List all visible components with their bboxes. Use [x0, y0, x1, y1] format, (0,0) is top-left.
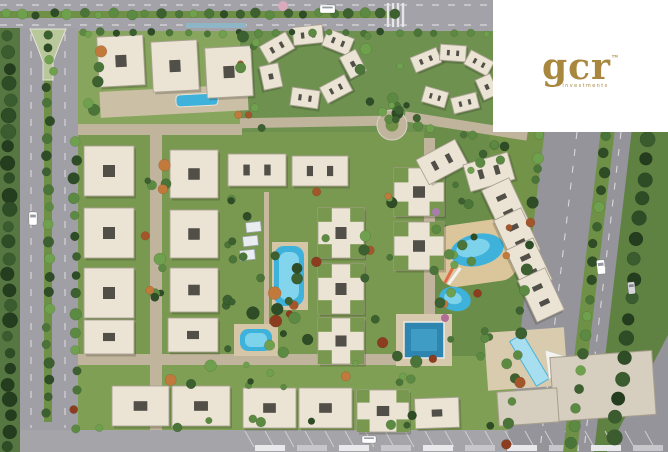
trees-south-band — [400, 373, 407, 380]
trees-central-garden — [289, 312, 301, 324]
trees — [458, 198, 465, 205]
tree-row-left-edge — [2, 140, 14, 152]
trees-south-band — [243, 362, 249, 368]
trees — [251, 104, 259, 112]
trees-central-garden — [256, 274, 264, 282]
roof-core — [103, 287, 115, 299]
tree-row-right-edge — [639, 152, 652, 165]
tree-row-north-hedge — [376, 28, 383, 35]
trees — [258, 124, 266, 132]
trees — [387, 93, 398, 104]
tree-row-north-hedge — [254, 29, 262, 37]
roof-core — [301, 32, 305, 38]
parking-row — [633, 445, 663, 451]
tree-row-right-edge — [607, 430, 623, 446]
trees-south-hedge — [96, 424, 103, 431]
tree-row-avenue-median — [596, 185, 606, 195]
trees-waterpark — [435, 298, 445, 308]
tree-row-top-median — [51, 8, 60, 17]
tree-row-top-median — [390, 9, 400, 19]
trees — [158, 184, 168, 194]
tree-row-right-edge — [632, 211, 647, 226]
tree-row-right-edge — [640, 132, 655, 147]
trees-central-garden — [271, 303, 283, 315]
tree-row-top-median — [175, 10, 183, 18]
tree-row-left-median — [44, 393, 52, 401]
tree-row-north-hedge — [483, 31, 489, 37]
tree-row-west-verge — [71, 288, 81, 298]
trees-south-band — [429, 355, 437, 363]
trees-central-garden — [311, 257, 321, 267]
trees-waterpark — [446, 288, 455, 297]
developer-logo: gcr™ — [542, 43, 619, 82]
tree-row-top-median — [204, 9, 214, 19]
trees-south-band — [406, 375, 415, 384]
tree-row-north-hedge — [326, 29, 332, 35]
car — [320, 5, 335, 13]
tree-row-right-edge — [618, 351, 632, 365]
trees-waterpark — [503, 252, 510, 259]
parking-row — [381, 445, 411, 451]
building-notch — [350, 208, 364, 222]
tree-row-avenue-median — [577, 348, 588, 359]
tree-row-left-edge — [2, 188, 17, 203]
trees — [477, 352, 485, 360]
tree-row-right-edge — [635, 191, 649, 205]
trees-waterpark — [450, 261, 458, 269]
tree-row-west-verge — [70, 405, 78, 413]
roof-core — [413, 240, 425, 252]
tree-row-left-median — [45, 203, 53, 211]
tree-row-avenue-verge — [519, 285, 530, 296]
tree-row-island — [49, 67, 57, 75]
roof-core — [115, 55, 127, 68]
building-slab — [439, 44, 466, 62]
parking-row — [255, 445, 285, 451]
tree-row-top-median — [80, 8, 89, 17]
trees — [426, 124, 434, 132]
tree-row-west-verge — [70, 328, 81, 339]
tree-row-left-median — [42, 98, 51, 107]
trees — [371, 315, 380, 324]
trees — [413, 114, 421, 122]
tree-row-left-edge — [2, 392, 17, 407]
trees-central-garden — [291, 273, 302, 284]
tree-row-north-hedge — [451, 30, 458, 37]
tree-row-left-edge — [3, 284, 17, 298]
trees — [146, 286, 154, 294]
tree-row-west-verge — [68, 172, 80, 184]
tree-row-left-edge — [2, 313, 17, 328]
trees — [360, 274, 369, 283]
tree-row-left-edge — [1, 124, 16, 139]
tree-row-left-edge — [5, 363, 16, 374]
tree-row-north-hedge — [148, 28, 155, 35]
trees — [235, 62, 246, 73]
tree-row-north-hedge — [219, 30, 227, 38]
roof-core — [223, 66, 235, 79]
tree-row-left-median — [44, 287, 54, 297]
tree-row-left-median — [44, 358, 55, 369]
tree-row-avenue-verge — [526, 218, 535, 227]
tree-row-north-hedge — [289, 29, 295, 35]
tree-row-top-median — [265, 10, 274, 19]
street-internal — [150, 132, 162, 430]
parking-row — [339, 445, 369, 451]
tree-row-top-median — [2, 9, 11, 18]
tree-row-avenue-verge — [501, 439, 511, 449]
tree-row-north-hedge — [414, 28, 422, 36]
roof-core — [264, 165, 270, 176]
tree-row-right-edge — [615, 372, 630, 387]
tree-row-right-edge — [627, 252, 640, 265]
trees — [452, 182, 458, 188]
tree-row-left-median — [43, 219, 53, 229]
trees — [447, 336, 454, 343]
tree-row-avenue-verge — [532, 176, 540, 184]
tree-row-left-edge — [2, 202, 17, 217]
tree-row-left-median — [45, 272, 55, 282]
trees — [229, 299, 236, 306]
tree-row-avenue-median — [582, 311, 592, 321]
building-notch — [396, 390, 409, 403]
trees — [395, 106, 404, 115]
tree-row-avenue-verge — [516, 307, 524, 315]
trees — [83, 98, 93, 108]
trees — [534, 165, 542, 173]
trees-central-garden — [285, 297, 293, 305]
tree-row-avenue-verge — [503, 418, 514, 429]
tree-row-avenue-median — [601, 131, 611, 141]
tree-row-right-edge — [622, 313, 634, 325]
car — [362, 436, 376, 443]
trees-central-garden — [264, 340, 275, 351]
building-notch — [318, 264, 332, 278]
developer-logo-panel: gcr™ investments — [493, 0, 668, 132]
building-notch — [318, 208, 332, 222]
tree-row-right-edge — [611, 392, 625, 406]
roof-core — [413, 186, 425, 198]
tree-row-top-median — [343, 8, 353, 18]
trees-south-band — [392, 351, 402, 361]
trees-south-hedge — [408, 411, 417, 420]
canal — [186, 23, 246, 28]
tree-row-west-verge — [68, 193, 79, 204]
tree-row-left-edge — [5, 409, 17, 421]
tree-row-left-median — [44, 253, 55, 264]
trees — [141, 232, 150, 241]
tree-row-avenue-median — [599, 167, 610, 178]
trees — [159, 159, 171, 171]
trees-south-band — [186, 379, 196, 389]
parking-row — [591, 445, 621, 451]
roof-core — [187, 331, 199, 339]
trees-south-hedge — [256, 417, 266, 427]
tree-row-north-hedge — [204, 31, 211, 38]
roof-core — [103, 333, 115, 341]
trees — [467, 167, 474, 174]
trees — [237, 31, 249, 43]
trees — [500, 142, 509, 151]
tree-row-left-median — [45, 375, 55, 385]
tree-row-left-edge — [2, 30, 13, 41]
tree-row-top-median — [61, 9, 72, 20]
roof-core — [432, 409, 443, 417]
trees — [85, 31, 91, 37]
roof-core — [243, 165, 249, 176]
tree-row-left-median — [42, 409, 51, 418]
trees-central-garden — [280, 330, 287, 337]
trees-central-garden — [302, 334, 313, 345]
trees — [151, 293, 159, 301]
trees — [475, 158, 485, 168]
tree-row-left-edge — [2, 76, 17, 91]
tree-row-north-hedge — [113, 30, 120, 37]
tree-row-left-median — [42, 134, 52, 144]
roof-core — [103, 227, 115, 239]
trees-south-band — [410, 356, 422, 368]
trees — [496, 156, 505, 165]
trees — [154, 253, 166, 265]
tree-row-avenue-verge — [515, 328, 527, 340]
trees-south-band — [205, 360, 217, 372]
roof-core — [307, 166, 313, 176]
tree-row-avenue-median — [592, 222, 601, 231]
tree-row-west-verge — [72, 252, 80, 260]
trees — [460, 131, 467, 138]
trees-south-hedge — [308, 418, 315, 425]
tree-row-top-median — [141, 10, 149, 18]
roof-core — [263, 403, 276, 413]
building-notch — [318, 350, 332, 364]
trees-central-garden — [292, 263, 302, 273]
trees — [234, 111, 242, 119]
roof-core — [447, 50, 450, 56]
cabana — [243, 235, 259, 247]
tree-row-top-median — [156, 8, 166, 18]
building-slab — [228, 154, 286, 186]
trees-south-band — [352, 360, 358, 366]
tree-row-left-edge — [4, 172, 15, 183]
clubhouse-main — [550, 351, 656, 422]
logo-text: gcr — [542, 46, 611, 88]
tree-row-left-edge — [1, 378, 14, 391]
tree-row-island — [44, 30, 53, 39]
trees — [224, 345, 231, 352]
trees — [397, 63, 404, 70]
trees — [413, 121, 423, 131]
tree-row-avenue-verge — [527, 197, 539, 209]
tree-row-avenue-median — [598, 148, 608, 158]
tree-row-left-edge — [0, 267, 14, 281]
tree-row-west-verge — [72, 271, 80, 279]
tree-row-north-hedge — [467, 29, 475, 37]
trees-south-hedge — [249, 415, 257, 423]
tree-row-top-median — [250, 8, 260, 18]
tree-row-avenue-median — [569, 420, 581, 432]
tree-row-west-verge — [70, 211, 79, 220]
building-notch — [394, 168, 408, 182]
trees-central-garden — [270, 315, 282, 327]
car — [29, 212, 37, 225]
trees-waterpark — [432, 225, 441, 234]
trees — [364, 32, 371, 39]
parking-row — [423, 445, 453, 451]
car-windshield — [322, 7, 333, 9]
trees-waterpark — [471, 234, 478, 241]
trees — [252, 39, 260, 47]
tree-row-north-hedge — [396, 29, 403, 36]
tree-row-left-edge — [4, 94, 17, 107]
tree-row-left-median — [42, 167, 51, 176]
trees-waterpark — [444, 249, 454, 259]
trees — [94, 62, 104, 72]
tree-row-top-median — [360, 7, 371, 18]
building-notch — [350, 300, 364, 314]
building-notch — [318, 244, 332, 258]
tree-row-avenue-verge — [533, 153, 544, 164]
tree-row-left-edge — [2, 331, 12, 341]
tree-row-top-median — [127, 10, 137, 20]
trees — [464, 199, 474, 209]
parking-row — [297, 445, 327, 451]
tree-row-top-median — [17, 9, 27, 19]
tree-row-west-verge — [73, 367, 82, 376]
tree-row-top-median — [375, 8, 385, 18]
car-windshield — [598, 263, 604, 267]
trees-south-hedge — [206, 417, 213, 424]
tree-row-north-hedge — [343, 29, 350, 36]
trees — [389, 102, 395, 108]
building-notch — [394, 256, 408, 270]
car-windshield — [364, 437, 374, 439]
pool-south-shallow — [245, 333, 267, 347]
trees-central-garden — [243, 212, 252, 221]
tree-row-west-verge — [73, 386, 82, 395]
tree-row-left-edge — [3, 253, 16, 266]
roof-core — [169, 60, 181, 73]
building-slab — [292, 156, 348, 186]
tree-row-avenue-median — [576, 365, 586, 375]
tree-row-left-edge — [1, 45, 15, 59]
tree-row-north-hedge — [308, 29, 316, 37]
tree-row-island — [44, 44, 53, 53]
tree-row-west-verge — [70, 232, 79, 241]
trees — [360, 231, 371, 242]
tree-row-left-median — [41, 151, 51, 161]
tree-row-right-edge — [629, 232, 643, 246]
trees — [387, 254, 393, 260]
roof-core — [335, 227, 346, 239]
tree-row-left-edge — [1, 108, 16, 123]
parking-row — [465, 445, 495, 451]
trees-waterpark — [457, 240, 467, 250]
tree-row-left-median — [42, 323, 50, 331]
tree-row-left-edge — [2, 234, 16, 248]
trees — [245, 112, 252, 119]
tree-row-top-median — [299, 11, 307, 19]
trees — [228, 238, 236, 246]
cabana — [246, 221, 262, 233]
tree-row-top-median — [220, 10, 228, 18]
trees — [378, 107, 387, 116]
tree-row-avenue-median — [580, 330, 591, 341]
masterplan-aerial-render: gcr™ investments — [0, 0, 668, 452]
tree-row-avenue-median — [570, 403, 580, 413]
trademark-symbol: ™ — [611, 53, 619, 63]
trees-south-band — [281, 384, 287, 390]
parking-row — [507, 445, 537, 451]
tree-row-north-hedge — [166, 29, 173, 36]
tree-row-right-edge — [608, 410, 622, 424]
tree-row-left-edge — [0, 156, 15, 171]
trees — [468, 131, 477, 140]
trees — [158, 264, 166, 272]
logo-tagline: investments — [552, 83, 608, 89]
trees — [377, 337, 388, 348]
roof-core — [188, 168, 200, 180]
building-notch — [318, 318, 332, 332]
trees-south-band — [341, 372, 350, 381]
tree-row-avenue-verge — [525, 241, 534, 250]
tree-row-north-hedge — [272, 29, 279, 36]
trees — [229, 255, 237, 263]
tree-row-left-edge — [4, 299, 17, 312]
trees — [145, 178, 151, 184]
tree-row-island — [45, 55, 54, 64]
trees-south-hedge — [487, 422, 495, 430]
trees — [366, 98, 374, 106]
median-left — [44, 78, 52, 422]
trees-central-garden — [228, 197, 235, 204]
roof-core — [377, 406, 389, 416]
tree-row-top-median — [236, 10, 245, 19]
car-windshield — [629, 284, 634, 287]
trees-south-hedge — [386, 420, 396, 430]
building-notch — [318, 300, 332, 314]
trees — [490, 140, 498, 148]
trees-south-band — [247, 378, 253, 384]
trees-waterpark — [430, 266, 439, 275]
tree-row-left-edge — [3, 221, 14, 232]
roof-core — [335, 283, 346, 295]
roof-core — [103, 165, 115, 177]
trees-south-band — [501, 358, 512, 369]
tree-row-avenue-verge — [521, 264, 533, 276]
tree-row-avenue-median — [588, 239, 597, 248]
trees-waterpark — [506, 224, 513, 231]
tree-row-avenue-median — [594, 202, 605, 213]
tree-row-left-median — [43, 184, 54, 195]
trees — [359, 245, 370, 256]
trees — [479, 150, 487, 158]
roof-core — [327, 166, 333, 176]
trees — [385, 193, 392, 200]
trees-central-garden — [268, 287, 281, 300]
tree-row-top-median — [95, 12, 102, 19]
tree-row-north-hedge — [129, 29, 136, 36]
tree-row-top-median — [109, 8, 119, 18]
pool-square-inner — [411, 329, 437, 351]
building-notch — [394, 222, 408, 236]
building-notch — [357, 390, 370, 403]
trees — [481, 334, 490, 343]
tree-row-left-median — [45, 304, 56, 315]
roof-core — [335, 335, 346, 346]
roof-core — [188, 228, 200, 240]
tree-row-left-median — [45, 116, 55, 126]
tree-row-north-hedge — [96, 27, 104, 35]
